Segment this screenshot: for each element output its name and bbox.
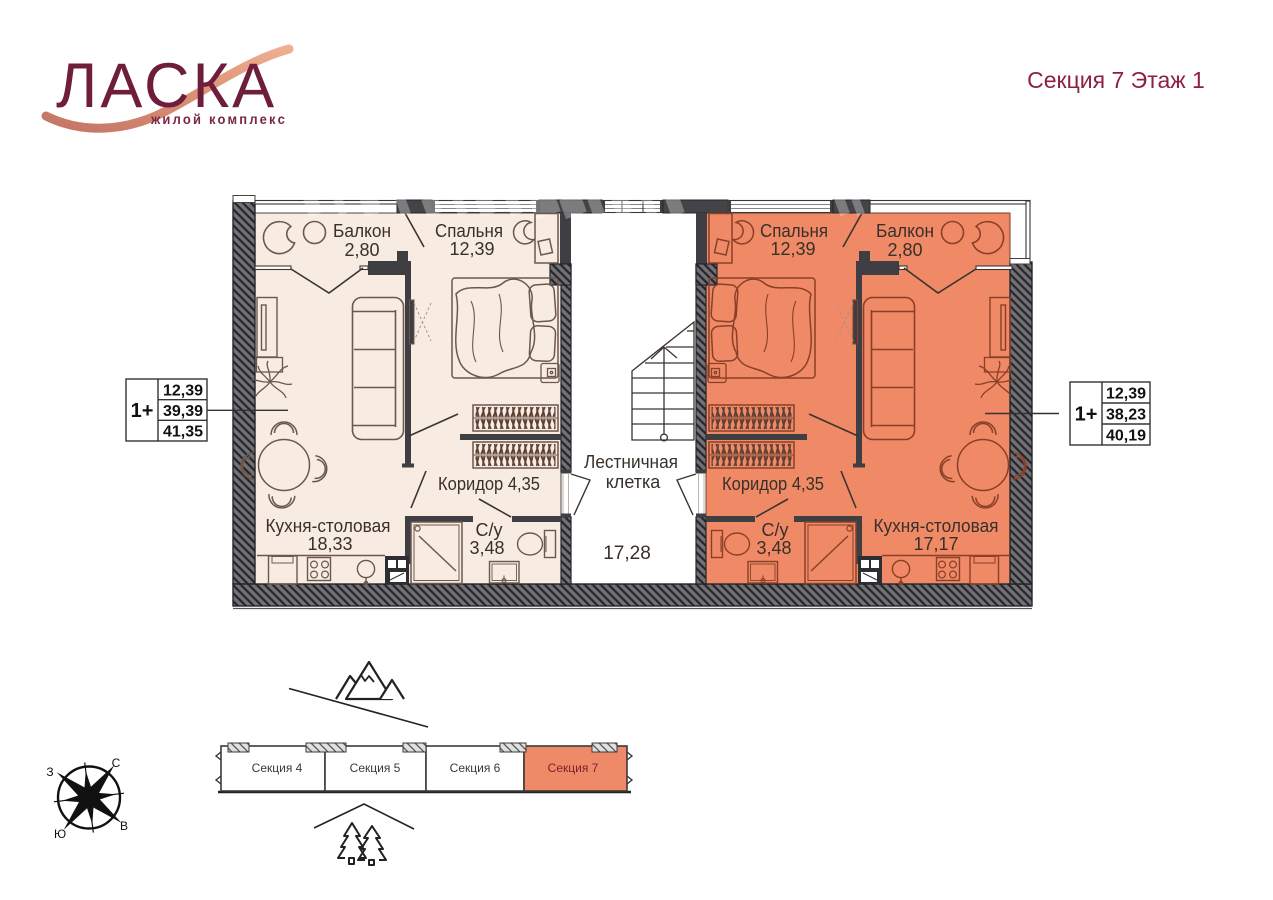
svg-text:Коридор 4,35: Коридор 4,35 <box>722 474 824 494</box>
svg-text:Кухня-столовая: Кухня-столовая <box>874 516 999 536</box>
svg-text:З: З <box>46 765 53 779</box>
svg-text:39,39: 39,39 <box>163 403 203 420</box>
svg-text:Секция 7 Этаж 1: Секция 7 Этаж 1 <box>1027 67 1205 93</box>
svg-text:41,35: 41,35 <box>163 424 203 441</box>
svg-text:С: С <box>112 756 121 770</box>
svg-text:Кухня-столовая: Кухня-столовая <box>266 516 391 536</box>
svg-text:12,39: 12,39 <box>1106 386 1146 403</box>
svg-text:Секция 7: Секция 7 <box>548 761 599 775</box>
svg-text:2,80: 2,80 <box>344 240 379 260</box>
svg-text:С/у: С/у <box>476 520 503 540</box>
svg-text:1+: 1+ <box>1075 404 1098 426</box>
svg-text:Коридор 4,35: Коридор 4,35 <box>438 474 540 494</box>
svg-text:12,39: 12,39 <box>163 383 203 400</box>
svg-text:12,39: 12,39 <box>449 239 494 259</box>
svg-text:18,33: 18,33 <box>307 534 352 554</box>
svg-text:жилой комплекс: жилой комплекс <box>150 111 287 127</box>
svg-text:1+: 1+ <box>131 400 154 422</box>
svg-text:12,39: 12,39 <box>770 239 815 259</box>
svg-text:Лестничная: Лестничная <box>584 452 678 472</box>
svg-text:40,19: 40,19 <box>1106 428 1146 445</box>
svg-text:Балкон: Балкон <box>876 221 934 241</box>
svg-text:3,48: 3,48 <box>756 538 791 558</box>
svg-text:Ю: Ю <box>54 827 66 841</box>
svg-text:Балкон: Балкон <box>333 221 391 241</box>
svg-text:клетка: клетка <box>606 472 662 492</box>
svg-text:Секция 5: Секция 5 <box>350 761 401 775</box>
svg-text:17,28: 17,28 <box>603 543 651 564</box>
svg-text:3,48: 3,48 <box>469 538 504 558</box>
svg-text:Спальня: Спальня <box>760 221 828 241</box>
svg-text:2,80: 2,80 <box>887 240 922 260</box>
svg-text:Секция 6: Секция 6 <box>450 761 501 775</box>
svg-text:Секция 4: Секция 4 <box>252 761 303 775</box>
svg-text:38,23: 38,23 <box>1106 407 1146 424</box>
svg-text:Спальня: Спальня <box>435 221 503 241</box>
svg-text:17,17: 17,17 <box>913 534 958 554</box>
svg-text:В: В <box>120 819 128 833</box>
svg-text:С/у: С/у <box>762 520 789 540</box>
